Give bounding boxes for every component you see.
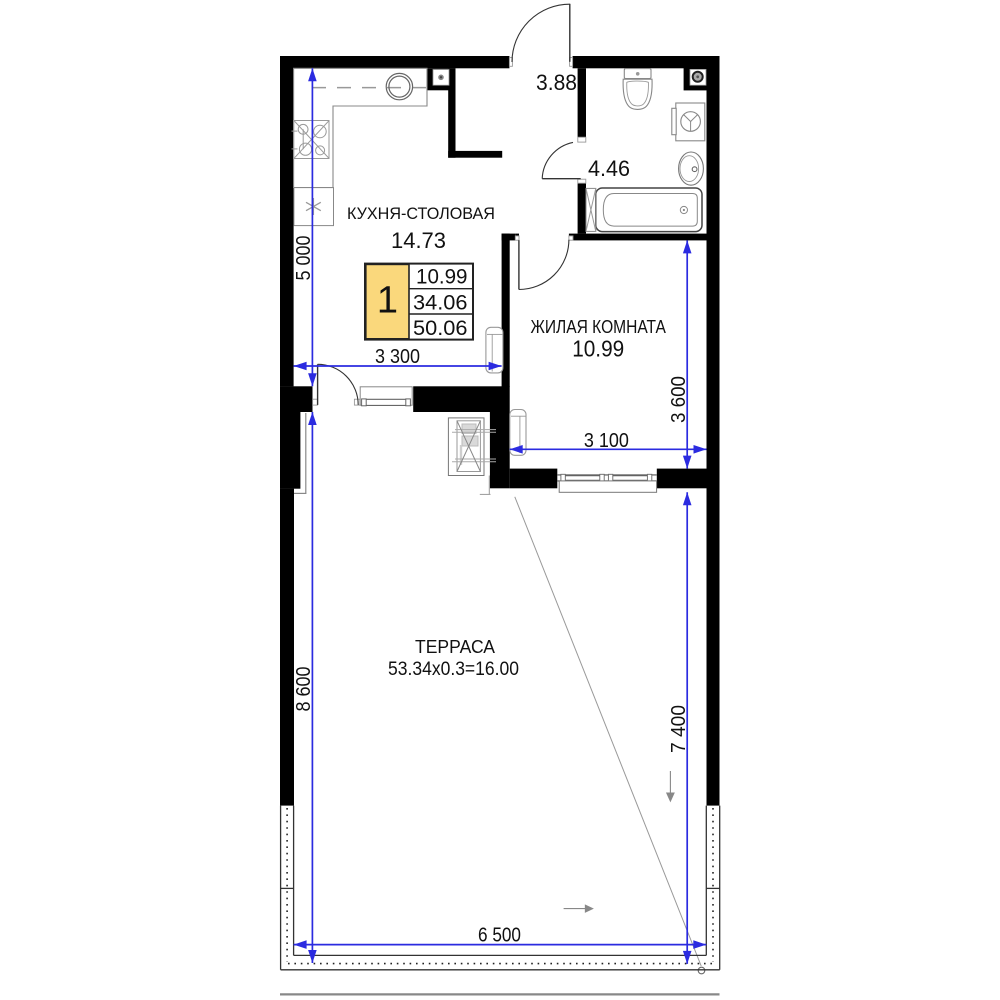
svg-text:6 500: 6 500 (478, 925, 521, 947)
svg-text:50.06: 50.06 (413, 317, 468, 340)
svg-text:ТЕРРАСА: ТЕРРАСА (415, 636, 496, 657)
svg-text:ЖИЛАЯ КОМНАТА: ЖИЛАЯ КОМНАТА (530, 317, 666, 337)
svg-text:3.88: 3.88 (536, 70, 577, 95)
svg-text:7 400: 7 400 (668, 705, 690, 753)
svg-text:53.34x0.3=16.00: 53.34x0.3=16.00 (388, 658, 519, 680)
svg-text:КУХНЯ-СТОЛОВАЯ: КУХНЯ-СТОЛОВАЯ (347, 204, 495, 223)
svg-text:14.73: 14.73 (391, 228, 446, 253)
svg-text:1: 1 (377, 280, 398, 322)
svg-text:3 600: 3 600 (668, 376, 690, 423)
svg-text:5 000: 5 000 (293, 236, 315, 281)
svg-text:8 600: 8 600 (293, 667, 315, 712)
svg-text:34.06: 34.06 (413, 291, 468, 314)
svg-text:4.46: 4.46 (588, 156, 630, 181)
svg-text:10.99: 10.99 (416, 266, 468, 289)
svg-text:3 100: 3 100 (584, 430, 629, 452)
svg-text:10.99: 10.99 (572, 336, 624, 362)
svg-text:3 300: 3 300 (375, 346, 420, 368)
